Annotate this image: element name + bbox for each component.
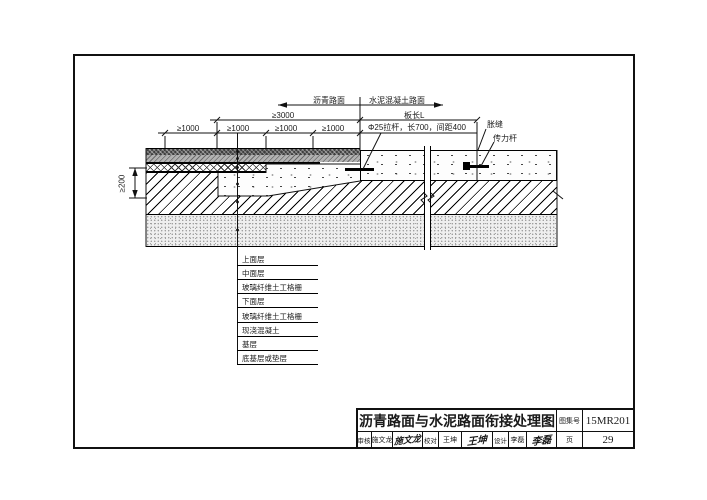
layer-callout-5: 玻璃纤维土工格栅 [237,312,318,323]
dim-3000-label: ≥3000 [272,111,294,120]
linework-overlay [0,0,707,500]
concrete-road-label: 水泥混凝土路面 [369,96,425,105]
dim-1000-label-4: ≥1000 [322,124,344,133]
tie-bar-label: Φ25拉杆，长700，间距400 [368,123,466,132]
dowel-bar-label: 传力杆 [493,134,517,143]
expansion-joint-label: 胀缝 [487,120,503,129]
slab-length-label: 板长L [404,111,424,120]
tie-bar-leader [363,133,381,169]
layer-callout-2: 中面层 [237,269,318,280]
exp-joint-leader [478,129,486,150]
layer-callout-7: 基层 [237,340,318,351]
layer-callout-1: 上面层 [237,255,318,266]
break-zigzag-icon [421,193,434,203]
dim-line-200 [129,168,147,198]
dim-1000-label-1: ≥1000 [177,124,199,133]
asphalt-road-label: 沥青路面 [313,96,345,105]
layer-callout-4: 下面层 [237,297,318,308]
dim-1000-label-3: ≥1000 [275,124,297,133]
layer-callout-8: 底基层或垫层 [237,354,318,365]
dim-200-label: ≥200 [118,172,127,196]
dim-1000-label-2: ≥1000 [227,124,249,133]
dowel-leader [481,142,494,166]
pavement-outline [146,148,563,247]
layer-callout-6: 现浇混凝土 [237,326,318,337]
drawing-sheet: 沥青路面 水泥混凝土路面 ≥3000 板长L ≥1000 ≥1000 ≥1000… [0,0,707,500]
layer-callout-3: 玻璃纤维土工格栅 [237,283,318,294]
